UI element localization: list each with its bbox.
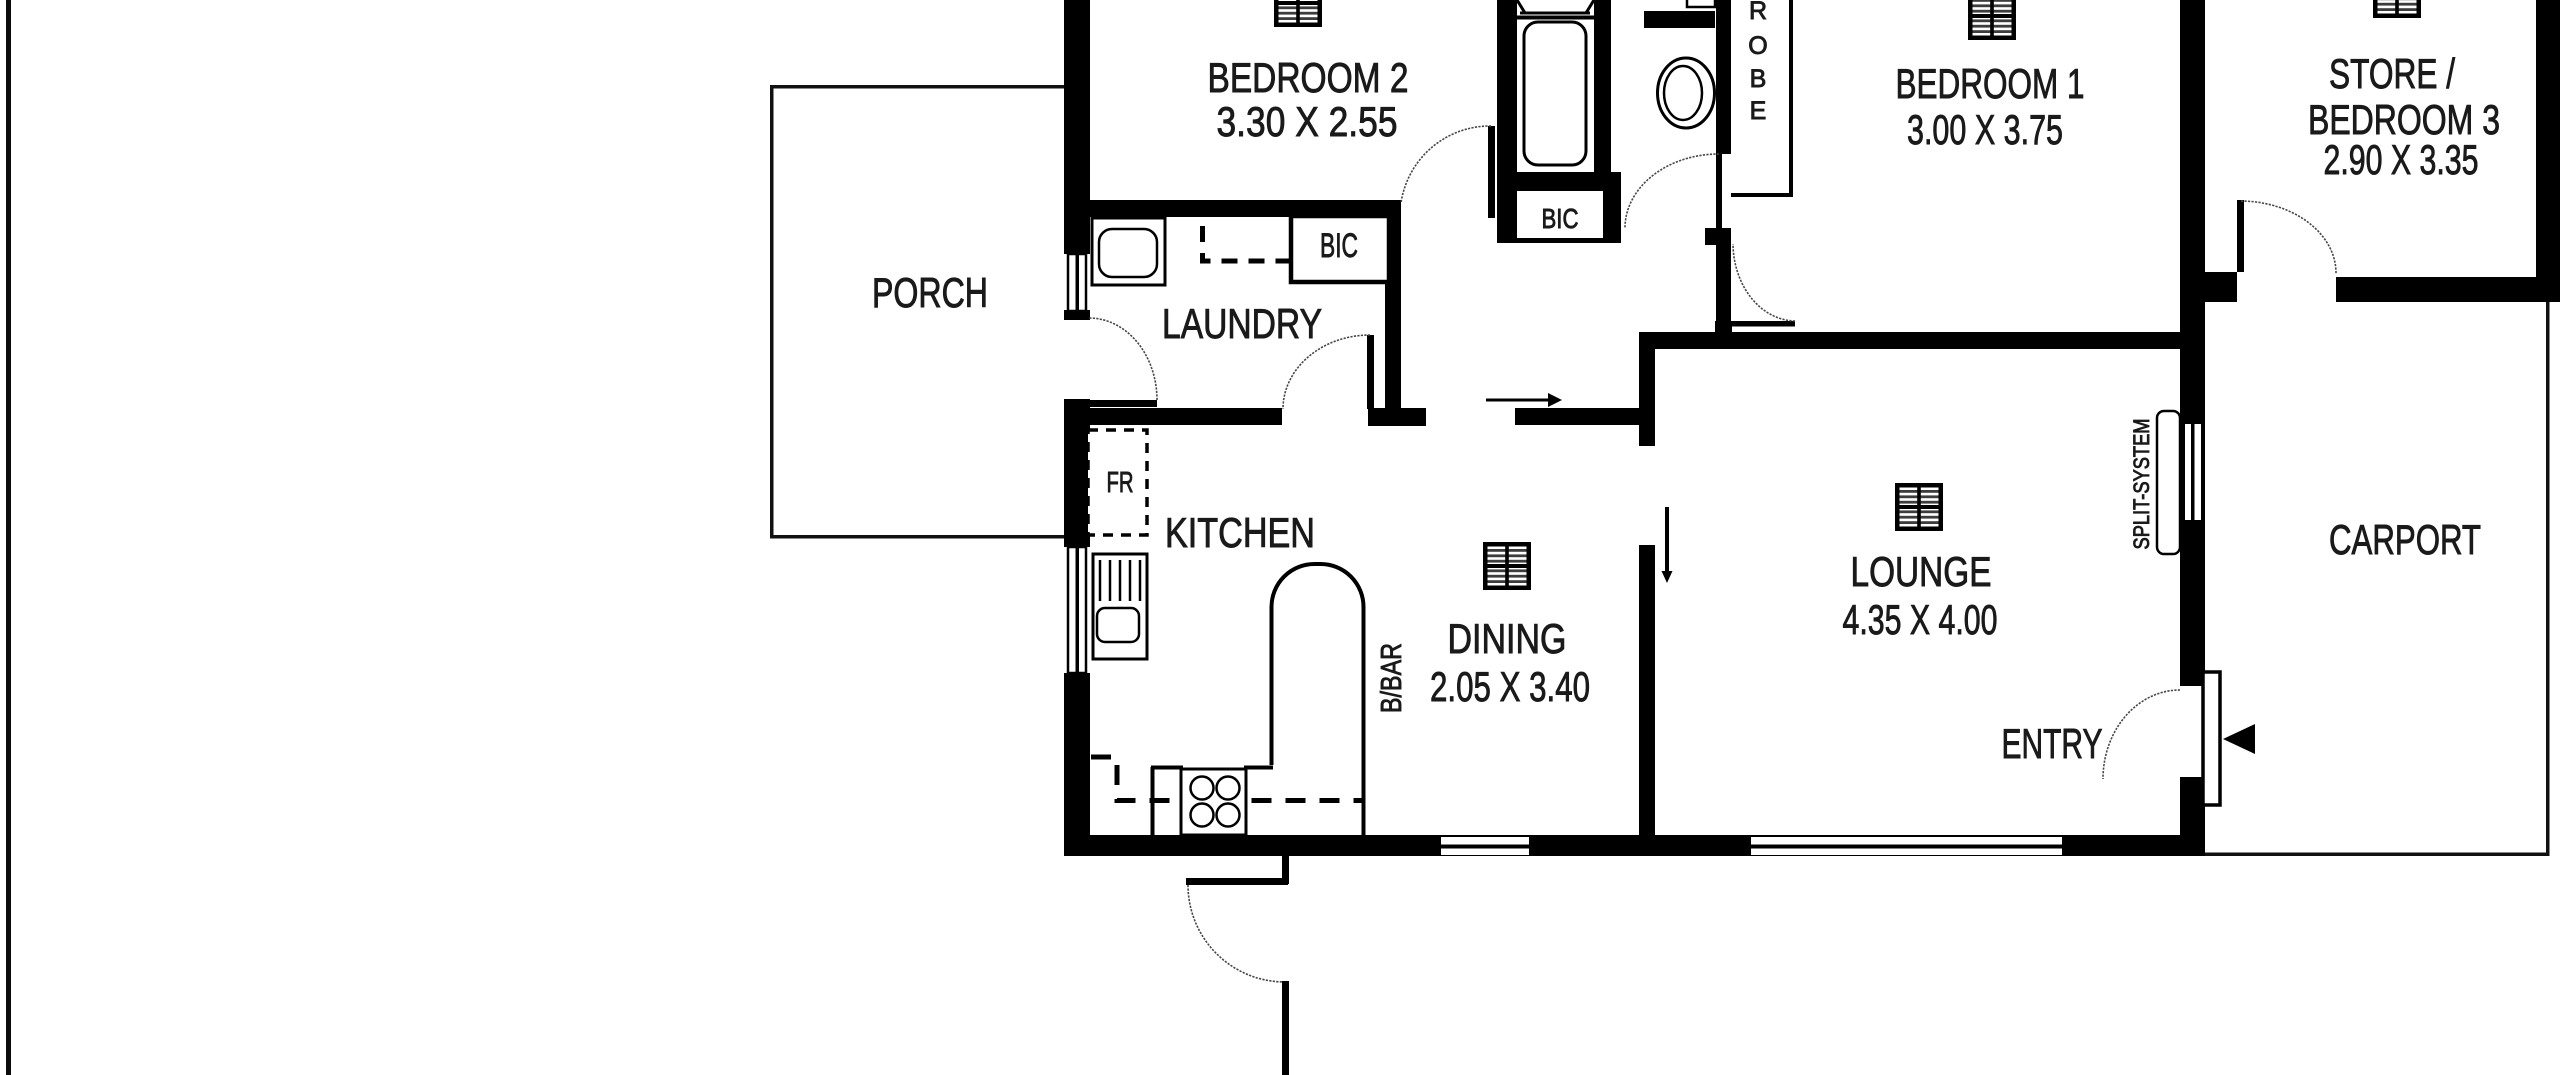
- svg-text:2.05 X 3.40: 2.05 X 3.40: [1430, 663, 1590, 710]
- svg-text:BEDROOM 1: BEDROOM 1: [1896, 60, 2085, 107]
- svg-text:2.90 X 3.35: 2.90 X 3.35: [2324, 136, 2479, 183]
- svg-text:DINING: DINING: [1448, 615, 1567, 662]
- svg-text:LOUNGE: LOUNGE: [1851, 548, 1992, 595]
- svg-text:BEDROOM 2: BEDROOM 2: [1208, 54, 1409, 101]
- svg-text:3.00 X 3.75: 3.00 X 3.75: [1907, 106, 2063, 153]
- svg-text:B: B: [1750, 65, 1767, 93]
- svg-text:E: E: [1750, 97, 1767, 125]
- svg-text:O: O: [1748, 32, 1767, 60]
- svg-text:BIC: BIC: [1542, 203, 1579, 234]
- svg-text:STORE /: STORE /: [2329, 50, 2455, 97]
- svg-text:4.35 X 4.00: 4.35 X 4.00: [1843, 596, 1998, 643]
- svg-text:SPLIT-SYSTEM: SPLIT-SYSTEM: [2129, 419, 2154, 550]
- svg-text:KITCHEN: KITCHEN: [1165, 509, 1315, 556]
- svg-text:BIC: BIC: [1320, 227, 1358, 265]
- svg-text:CARPORT: CARPORT: [2329, 516, 2481, 563]
- svg-text:R: R: [1749, 0, 1767, 25]
- svg-text:FR: FR: [1107, 467, 1134, 499]
- svg-text:ENTRY: ENTRY: [2002, 720, 2103, 767]
- svg-text:3.30 X 2.55: 3.30 X 2.55: [1217, 98, 1398, 145]
- svg-text:B/BAR: B/BAR: [1376, 643, 1408, 713]
- svg-text:PORCH: PORCH: [872, 269, 988, 316]
- svg-text:LAUNDRY: LAUNDRY: [1162, 300, 1322, 347]
